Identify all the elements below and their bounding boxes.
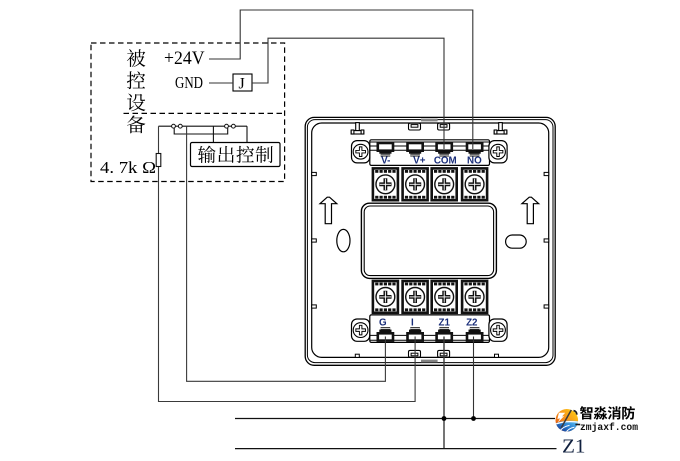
svg-text:COM: COM — [434, 156, 457, 167]
svg-text:G: G — [379, 318, 387, 329]
svg-text:Z1: Z1 — [438, 318, 450, 329]
svg-text:4. 7k Ω: 4. 7k Ω — [100, 158, 156, 177]
svg-text:GND: GND — [175, 73, 203, 92]
svg-text:Z1: Z1 — [562, 435, 586, 457]
svg-text:V-: V- — [381, 156, 390, 167]
svg-text:Z2: Z2 — [466, 318, 478, 329]
svg-text:zmjaxf.com: zmjaxf.com — [580, 422, 638, 433]
svg-text:J: J — [239, 76, 245, 93]
svg-text:V+: V+ — [413, 156, 426, 167]
svg-text:+24V: +24V — [164, 49, 205, 69]
svg-text:I: I — [411, 318, 414, 329]
svg-text:NO: NO — [467, 156, 482, 167]
